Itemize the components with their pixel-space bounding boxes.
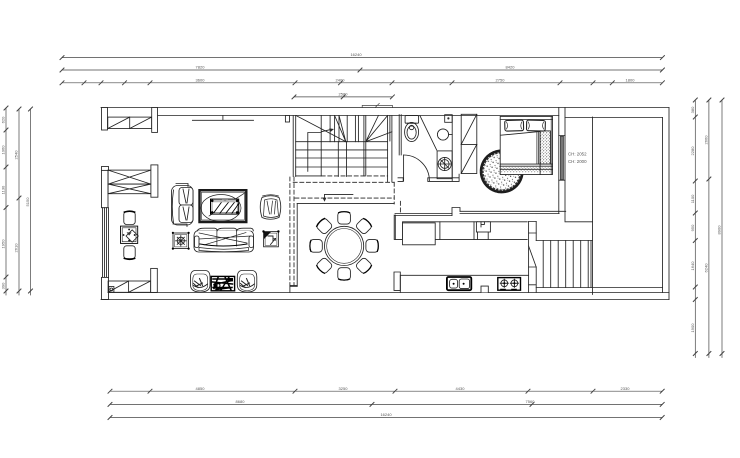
svg-text:1900: 1900 [690,323,695,333]
svg-text:2610: 2610 [14,243,19,253]
svg-text:2330: 2330 [621,386,631,391]
svg-text:16240: 16240 [350,52,362,57]
svg-text:1950: 1950 [1,239,6,249]
svg-text:8680: 8680 [236,399,246,404]
svg-text:620: 620 [1,116,6,123]
svg-text:1800: 1800 [626,77,636,82]
svg-text:3600: 3600 [196,77,206,82]
svg-text:2400: 2400 [336,77,346,82]
svg-text:380: 380 [690,106,695,113]
svg-text:CH: 2052: CH: 2052 [568,152,587,157]
svg-text:950: 950 [690,224,695,231]
svg-text:2580: 2580 [339,92,349,97]
svg-text:5150: 5150 [25,197,30,207]
svg-text:1640: 1640 [690,261,695,271]
svg-text:2280: 2280 [690,146,695,156]
svg-text:1100: 1100 [690,194,695,203]
svg-text:8900: 8900 [717,225,722,235]
svg-text:6240: 6240 [704,263,709,273]
svg-text:2750: 2750 [496,77,506,82]
svg-text:7820: 7820 [196,65,206,70]
svg-text:2540: 2540 [14,150,19,160]
svg-text:4850: 4850 [196,386,206,391]
svg-text:CH: 2000: CH: 2000 [568,159,587,164]
svg-text:390: 390 [1,282,6,289]
svg-text:1060: 1060 [1,145,6,155]
svg-text:16240: 16240 [380,412,392,417]
svg-text:8420: 8420 [506,65,516,70]
svg-text:1130: 1130 [1,185,6,194]
svg-text:7560: 7560 [526,399,536,404]
svg-text:2660: 2660 [704,135,709,145]
svg-text:4430: 4430 [456,386,466,391]
svg-text:3250: 3250 [339,386,349,391]
